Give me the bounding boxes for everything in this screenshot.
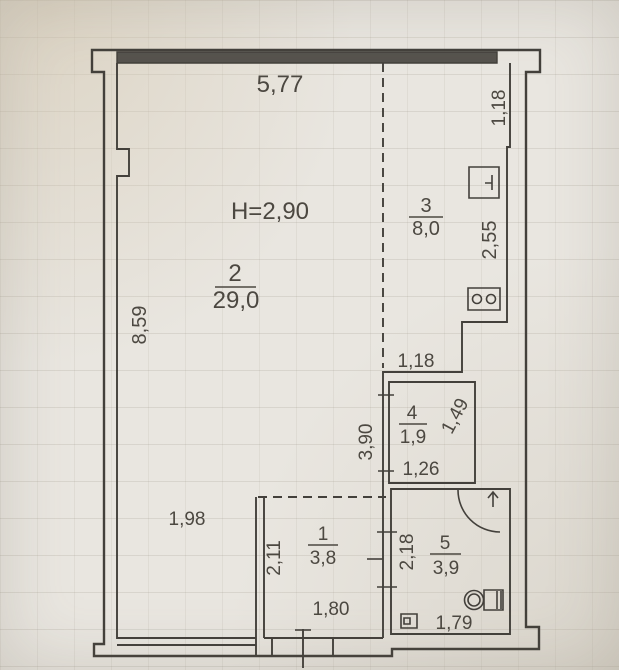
- dim-bath-bottom: 1,79: [436, 613, 473, 634]
- room-2-number: 2: [228, 260, 241, 287]
- room-5-number: 5: [440, 533, 451, 554]
- room-4-area: 1,9: [400, 427, 426, 448]
- room-label-3: 3 8,0: [409, 195, 443, 240]
- room-label-1: 1 3,8: [308, 524, 338, 569]
- dim-right-bay: 1,18: [489, 90, 510, 127]
- dim-left-height: 8,59: [129, 306, 151, 345]
- room-1-number: 1: [318, 524, 329, 545]
- dim-top-width: 5,77: [257, 71, 304, 98]
- stove-icon: [468, 288, 500, 310]
- room-label-5: 5 3,9: [430, 533, 461, 579]
- dim-bath-left: 2,18: [397, 534, 418, 571]
- dim-hall-offset-left: 1,98: [169, 509, 206, 530]
- dim-storage-left: 3,90: [356, 424, 377, 461]
- dim-storage-bottom: 1,26: [403, 459, 440, 480]
- top-wall-band: [117, 52, 497, 63]
- dim-kitchen-right: 2,55: [479, 221, 501, 260]
- floor-drain-icon: [401, 614, 417, 628]
- sink-icon: [469, 167, 499, 198]
- floor-plan-photo: 5,77 H=2,90 1,18 2,55 8,59 1,18 3,90 1,4…: [0, 0, 619, 670]
- entrance-door: [295, 629, 311, 668]
- room-5-area: 3,9: [433, 558, 459, 579]
- dim-hall-bottom: 1,80: [313, 599, 350, 620]
- toilet-icon: [465, 590, 504, 610]
- room-label-4: 4 1,9: [399, 403, 427, 448]
- room-label-2: 2 29,0: [213, 260, 260, 314]
- dim-storage-right: 1,49: [437, 395, 473, 438]
- dim-hall-left: 2,11: [264, 540, 285, 576]
- room-4-number: 4: [407, 403, 418, 424]
- ceiling-height-label: H=2,90: [231, 198, 309, 225]
- entrance-arrow-icon: [488, 492, 498, 507]
- room-3-number: 3: [420, 195, 431, 217]
- room-3-area: 8,0: [412, 218, 440, 240]
- floor-plan-drawing: 5,77 H=2,90 1,18 2,55 8,59 1,18 3,90 1,4…: [0, 0, 619, 670]
- room-1-area: 3,8: [310, 548, 336, 569]
- dim-kitchen-bottom: 1,18: [398, 351, 435, 372]
- room-2-area: 29,0: [213, 287, 260, 314]
